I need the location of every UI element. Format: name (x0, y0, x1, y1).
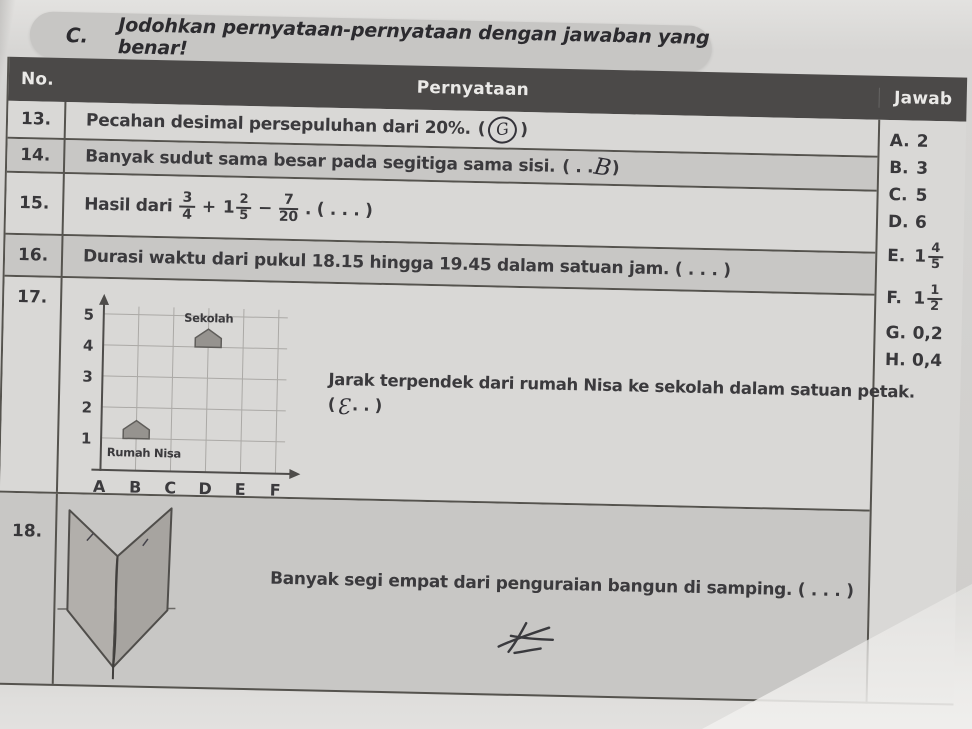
option-value: 0,4 (912, 350, 943, 371)
answer-option: D. 6 (888, 208, 965, 237)
svg-text:1: 1 (81, 429, 92, 447)
statement-cell: 5 4 3 2 1 A B C (58, 278, 874, 510)
svg-text:E: E (235, 480, 246, 499)
option-label: C. (888, 184, 915, 205)
handwritten-answer: Ɛ (336, 392, 351, 423)
option-value: 5 (915, 185, 927, 205)
handwritten-scribble (494, 620, 559, 663)
option-value: 3 (916, 158, 928, 178)
row-number: 17. (0, 277, 63, 492)
option-label: G. (885, 322, 912, 343)
grid-map-chart: 5 4 3 2 1 A B C (70, 291, 310, 502)
option-label: A. (890, 131, 917, 152)
handwritten-answer: B (592, 154, 613, 182)
option-value: 6 (915, 212, 927, 232)
svg-text:D: D (198, 479, 211, 498)
operator-plus: + (202, 197, 216, 217)
y-axis (100, 302, 104, 471)
svg-text:4: 4 (83, 336, 94, 354)
option-value: 1 12 (913, 283, 943, 314)
table-row-18: 18. Banyak segi empat dari penguraian b (0, 493, 870, 704)
paren-open: ( (477, 119, 485, 139)
option-label: E. (887, 246, 914, 267)
option-label: D. (888, 211, 915, 232)
svg-text:F: F (269, 481, 280, 500)
answer-option: A. 2 (890, 127, 967, 156)
option-label: H. (885, 349, 912, 370)
fraction: 34 (179, 190, 195, 223)
row-number: 18. (0, 493, 58, 684)
statement-suffix: . ( . . . ) (305, 199, 373, 220)
home-label: Rumah Nisa (107, 445, 181, 461)
answer-option: F. 1 12 (886, 277, 963, 321)
row-number: 15. (6, 173, 65, 234)
answer-option: G. 0,2 (885, 319, 962, 348)
svg-text:A: A (93, 477, 106, 496)
home-house-icon (123, 420, 149, 439)
statement-cell: Banyak segi empat dari penguraian bangun… (54, 494, 870, 702)
statement-text: Durasi waktu dari pukul 18.15 hingga 19.… (83, 246, 731, 280)
y-tick-labels: 5 4 3 2 1 (81, 305, 94, 447)
statement-text: Banyak segi empat dari penguraian bangun… (270, 569, 970, 604)
svg-text:2: 2 (81, 398, 92, 416)
operator-minus: − (258, 198, 272, 218)
v-prism-figure (56, 500, 182, 685)
header-no: No. (9, 69, 67, 90)
svg-text:3: 3 (82, 367, 93, 385)
answer-option: C. 5 (888, 181, 965, 210)
page-content: C. Jodohkan pernyataan-pernyataan dengan… (0, 0, 972, 729)
statement-text: Hasil dari (84, 194, 173, 216)
mixed-number: 1 25 (222, 192, 251, 223)
svg-text:5: 5 (83, 305, 94, 323)
statement-text: Banyak sudut sama besar pada segitiga sa… (85, 146, 555, 176)
answer-option: B. 3 (889, 154, 966, 183)
table-body: 13. Pecahan desimal persepuluhan dari 20… (0, 101, 966, 706)
svg-text:C: C (164, 478, 176, 497)
header-jawab: Jawab (879, 88, 967, 110)
answer-option: E. 1 45 (887, 235, 964, 279)
paren-open: ( (328, 395, 336, 414)
statement-rows: 13. Pecahan desimal persepuluhan dari 20… (0, 101, 878, 704)
row-number: 14. (7, 139, 66, 172)
option-value: 2 (917, 131, 929, 151)
svg-text:B: B (129, 477, 141, 496)
table-row-17: 17. (0, 277, 874, 512)
header-pernyataan: Pernyataan (67, 70, 879, 108)
option-label: B. (889, 157, 916, 178)
option-label: F. (886, 288, 913, 309)
option-value: 1 45 (914, 241, 944, 272)
paren-close: ) (612, 158, 620, 178)
x-axis-arrow-icon (289, 469, 300, 479)
fraction: 720 (279, 192, 299, 225)
paren-close: ) (520, 120, 528, 140)
statement-text: Jarak terpendek dari rumah Nisa ke sekol… (328, 370, 915, 402)
y-axis-arrow-icon (99, 294, 109, 305)
school-house-icon (195, 329, 221, 348)
right-panel (113, 507, 171, 668)
section-letter: C. (66, 23, 89, 47)
matching-table: No. Pernyataan Jawab 13. Pecahan desimal… (0, 57, 967, 706)
paren-close: . . ) (352, 395, 382, 415)
row-number: 13. (8, 101, 67, 138)
paren-open: ( . . (562, 157, 593, 178)
answer-option: H. 0,4 (885, 346, 962, 375)
school-label: Sekolah (184, 311, 234, 326)
x-axis (91, 470, 292, 474)
option-value: 0,2 (912, 323, 943, 344)
scanned-worksheet-page: C. Jodohkan pernyataan-pernyataan dengan… (0, 0, 972, 729)
statement-text: Pecahan desimal persepuluhan dari 20%. (86, 110, 471, 138)
handwritten-answer: G (486, 114, 519, 145)
row-number: 16. (5, 235, 64, 276)
